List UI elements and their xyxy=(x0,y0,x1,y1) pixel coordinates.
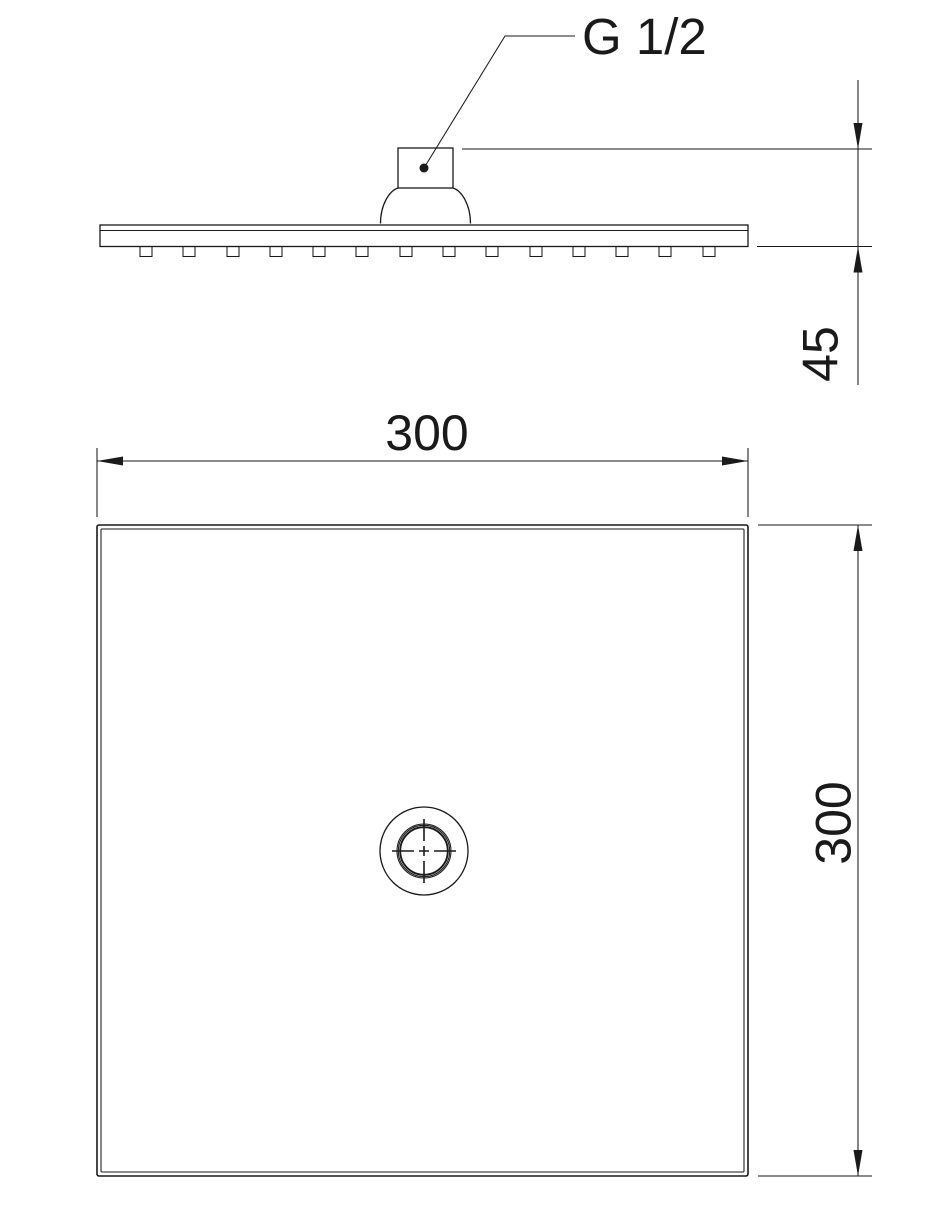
connector-bell-left xyxy=(381,188,399,224)
thread-label: G 1/2 xyxy=(582,8,707,65)
arrowhead-up-icon xyxy=(854,525,863,551)
side-view-nozzles xyxy=(140,247,715,257)
side-view: G 1/2 xyxy=(100,8,748,257)
arrowhead-up-icon xyxy=(854,247,863,273)
arrowhead-down-icon xyxy=(854,123,863,149)
drawing-canvas: G 1/2 45 300 xyxy=(0,0,952,1210)
dimension-width-300: 300 xyxy=(97,405,748,517)
center-mark xyxy=(392,819,456,883)
side-view-plate xyxy=(100,225,748,247)
arrowhead-right-icon xyxy=(722,457,748,466)
width-dimension-label: 300 xyxy=(385,405,468,461)
arrowhead-down-icon xyxy=(854,1150,863,1176)
dimension-height-45: 45 xyxy=(462,80,872,385)
plan-view xyxy=(97,525,748,1176)
dimension-depth-300: 300 xyxy=(758,525,872,1176)
arrowhead-left-icon xyxy=(97,457,123,466)
height-dimension-label: 45 xyxy=(793,326,849,382)
depth-dimension-label: 300 xyxy=(806,781,862,864)
connector-bell-right xyxy=(453,188,471,224)
